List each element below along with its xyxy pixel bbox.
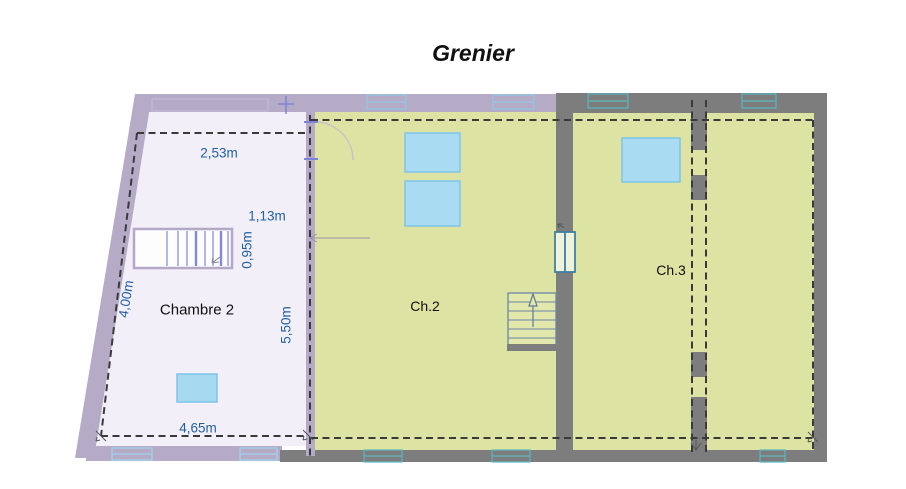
wall-right (814, 93, 827, 462)
skylight[interactable] (405, 133, 460, 172)
wall-bottom-right (280, 450, 827, 462)
dimension-label-bottom-width: 4,65m (179, 421, 217, 436)
skylight[interactable] (177, 374, 217, 402)
room-label-chambre2: Chambre 2 (160, 302, 234, 319)
stairs-landing-edge (507, 344, 557, 351)
knee-wall-post (691, 175, 707, 200)
dimension-label-right-height: 5,50m (279, 306, 294, 344)
knee-wall-post (691, 352, 707, 377)
dimension-label-stair-offset: 1,13m (248, 209, 286, 224)
floor-plan-drawing (0, 0, 906, 489)
room-label-ch2: Ch.2 (410, 298, 440, 314)
stairs-chambre2-icon[interactable] (134, 229, 232, 268)
dimension-label-top-width: 2,53m (200, 146, 238, 161)
dimension-label-stair-width: 0,95m (240, 231, 255, 269)
floor-plan-canvas: Grenier Chambre 2 Ch.2 Ch.3 2,53m 1,13m … (0, 0, 906, 489)
knee-wall-post (691, 95, 707, 150)
room-label-ch3: Ch.3 (656, 262, 686, 278)
plan-title: Grenier (432, 40, 514, 67)
window-ch2-ch3[interactable] (555, 224, 575, 272)
knee-wall-post (691, 397, 707, 452)
skylight[interactable] (622, 138, 680, 182)
skylight[interactable] (405, 181, 460, 226)
wall-ch2-ch3 (556, 93, 573, 461)
stairs-ch2-icon[interactable] (507, 293, 557, 351)
wall-chambre2-ch2 (306, 94, 315, 456)
